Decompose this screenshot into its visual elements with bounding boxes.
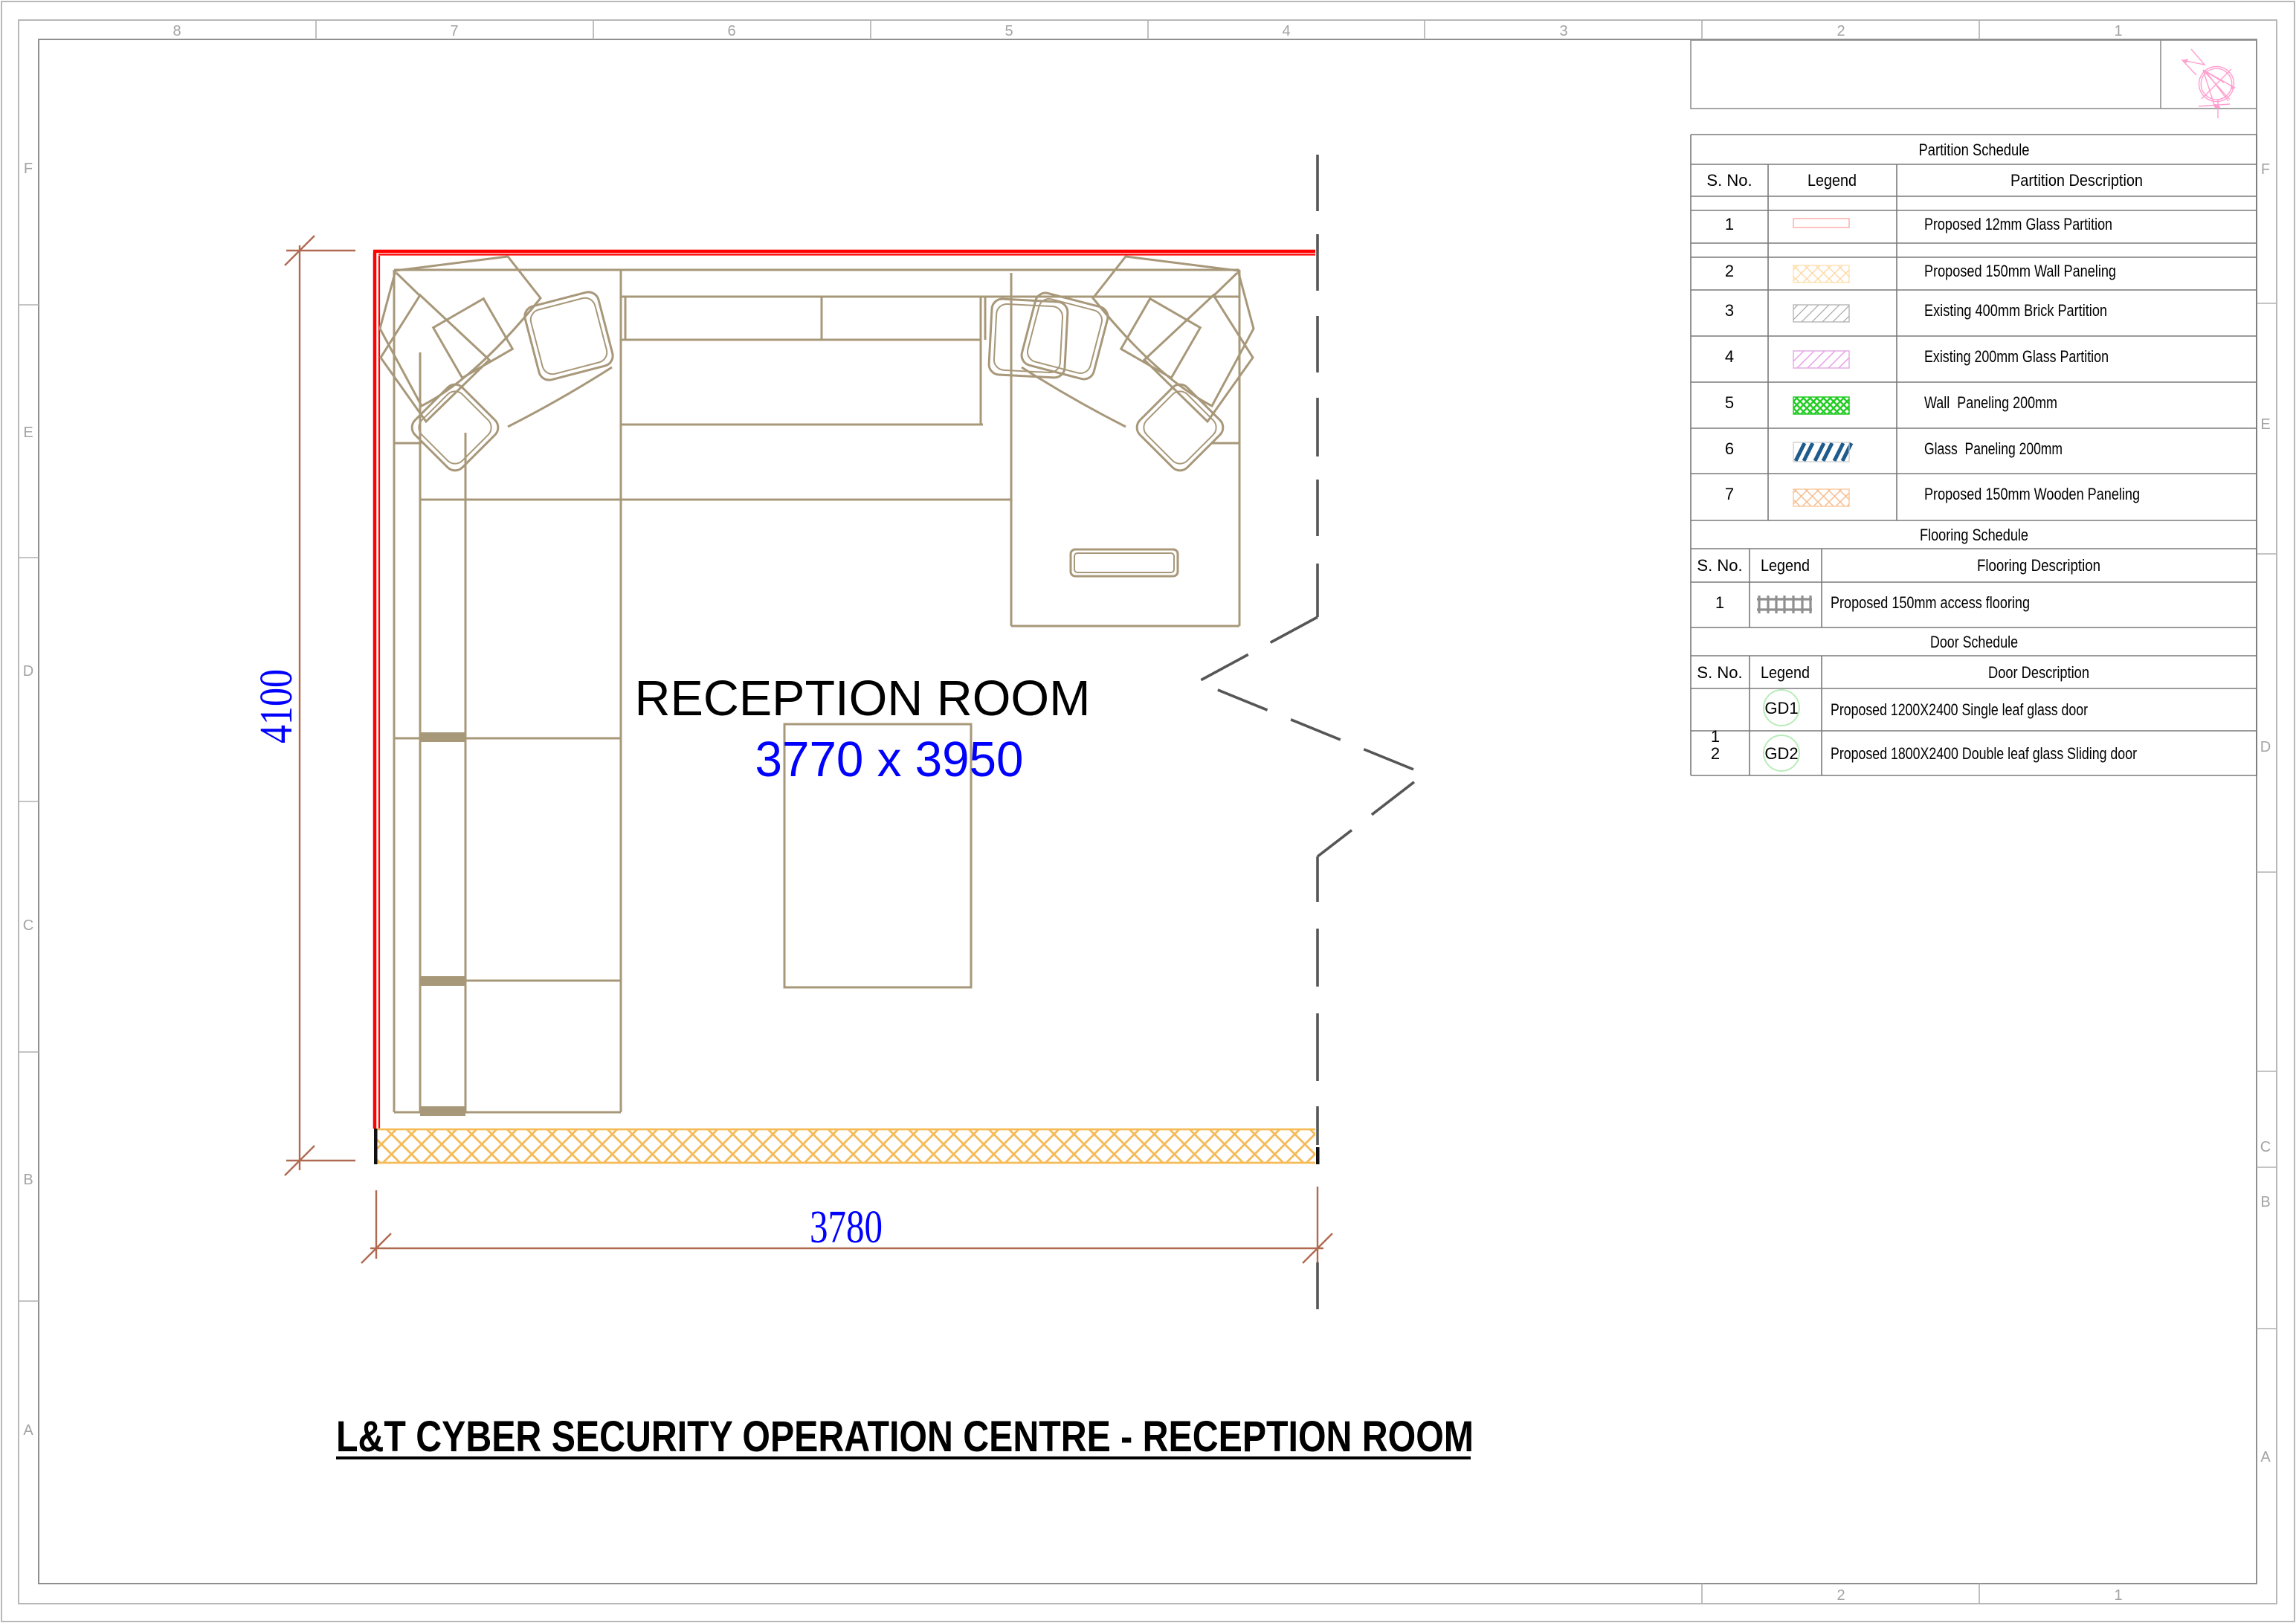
svg-text:GD1: GD1 (1764, 699, 1798, 717)
svg-text:Wall Paneling 200mm: Wall Paneling 200mm (1924, 393, 2057, 412)
svg-text:RECEPTION ROOM: RECEPTION ROOM (635, 671, 1091, 726)
svg-text:S. No.: S. No. (1697, 663, 1742, 682)
svg-text:Flooring Schedule: Flooring Schedule (1920, 526, 2028, 544)
svg-text:5: 5 (1004, 23, 1013, 39)
svg-text:1: 1 (1711, 727, 1720, 746)
svg-text:Proposed 150mm Wall Paneling: Proposed 150mm Wall Paneling (1924, 262, 2116, 280)
svg-text:3780: 3780 (810, 1202, 883, 1253)
svg-text:Partition Description: Partition Description (2010, 171, 2143, 190)
svg-text:S. No.: S. No. (1706, 171, 1752, 190)
svg-text:C: C (2260, 1139, 2271, 1155)
svg-text:6: 6 (727, 23, 735, 39)
svg-text:Proposed 150mm access flooring: Proposed 150mm access flooring (1831, 593, 2030, 612)
svg-text:Proposed 12mm Glass Partition: Proposed 12mm Glass Partition (1924, 215, 2112, 233)
svg-text:Existing 400mm Brick Partition: Existing 400mm Brick Partition (1924, 301, 2107, 320)
svg-text:1: 1 (2114, 23, 2122, 39)
svg-text:2: 2 (1837, 1587, 1845, 1604)
svg-text:3770 x 3950: 3770 x 3950 (755, 732, 1024, 787)
svg-text:E: E (2260, 416, 2270, 433)
svg-text:6: 6 (1725, 439, 1734, 458)
svg-text:1: 1 (1715, 593, 1724, 612)
svg-text:Glass Paneling 200mm: Glass Paneling 200mm (1924, 439, 2063, 458)
svg-text:Legend: Legend (1761, 663, 1810, 682)
svg-text:3: 3 (1725, 301, 1734, 320)
svg-text:A: A (23, 1422, 33, 1439)
svg-text:Proposed 150mm Wooden Paneling: Proposed 150mm Wooden Paneling (1924, 485, 2140, 503)
svg-text:A: A (2260, 1449, 2271, 1465)
svg-text:4100: 4100 (251, 669, 302, 743)
svg-text:GD2: GD2 (1764, 744, 1798, 763)
svg-text:Partition Schedule: Partition Schedule (1919, 141, 2030, 159)
svg-text:C: C (23, 917, 33, 934)
svg-text:L&T CYBER SECURITY OPERATION C: L&T CYBER SECURITY OPERATION CENTRE - RE… (336, 1413, 1474, 1461)
svg-text:3: 3 (1559, 23, 1567, 39)
svg-text:2: 2 (1711, 744, 1720, 763)
svg-text:Flooring Description: Flooring Description (1977, 556, 2100, 575)
svg-text:7: 7 (450, 23, 458, 39)
svg-text:F: F (24, 161, 33, 177)
svg-text:1: 1 (2114, 1587, 2122, 1604)
svg-text:Proposed 1200X2400 Single leaf: Proposed 1200X2400 Single leaf glass doo… (1831, 700, 2088, 719)
svg-text:8: 8 (172, 23, 181, 39)
svg-text:5: 5 (1725, 393, 1734, 412)
svg-text:D: D (2260, 739, 2271, 755)
svg-text:Legend: Legend (1808, 171, 1857, 190)
svg-text:D: D (23, 663, 33, 680)
svg-text:4: 4 (1282, 23, 1290, 39)
svg-text:1: 1 (1725, 215, 1734, 233)
svg-text:2: 2 (1837, 23, 1845, 39)
svg-text:F: F (2261, 161, 2270, 178)
svg-text:Legend: Legend (1761, 556, 1810, 575)
svg-text:E: E (23, 425, 33, 441)
svg-text:S. No.: S. No. (1697, 556, 1742, 575)
svg-text:7: 7 (1725, 485, 1734, 503)
svg-text:Door Description: Door Description (1988, 663, 2089, 682)
svg-text:B: B (23, 1172, 33, 1188)
svg-text:Proposed 1800X2400 Double leaf: Proposed 1800X2400 Double leaf glass Sli… (1831, 744, 2137, 763)
svg-text:B: B (2260, 1194, 2270, 1210)
svg-text:Existing 200mm Glass Partition: Existing 200mm Glass Partition (1924, 347, 2109, 366)
svg-text:Door Schedule: Door Schedule (1930, 633, 2018, 651)
svg-text:2: 2 (1725, 262, 1734, 280)
svg-text:4: 4 (1725, 347, 1734, 366)
